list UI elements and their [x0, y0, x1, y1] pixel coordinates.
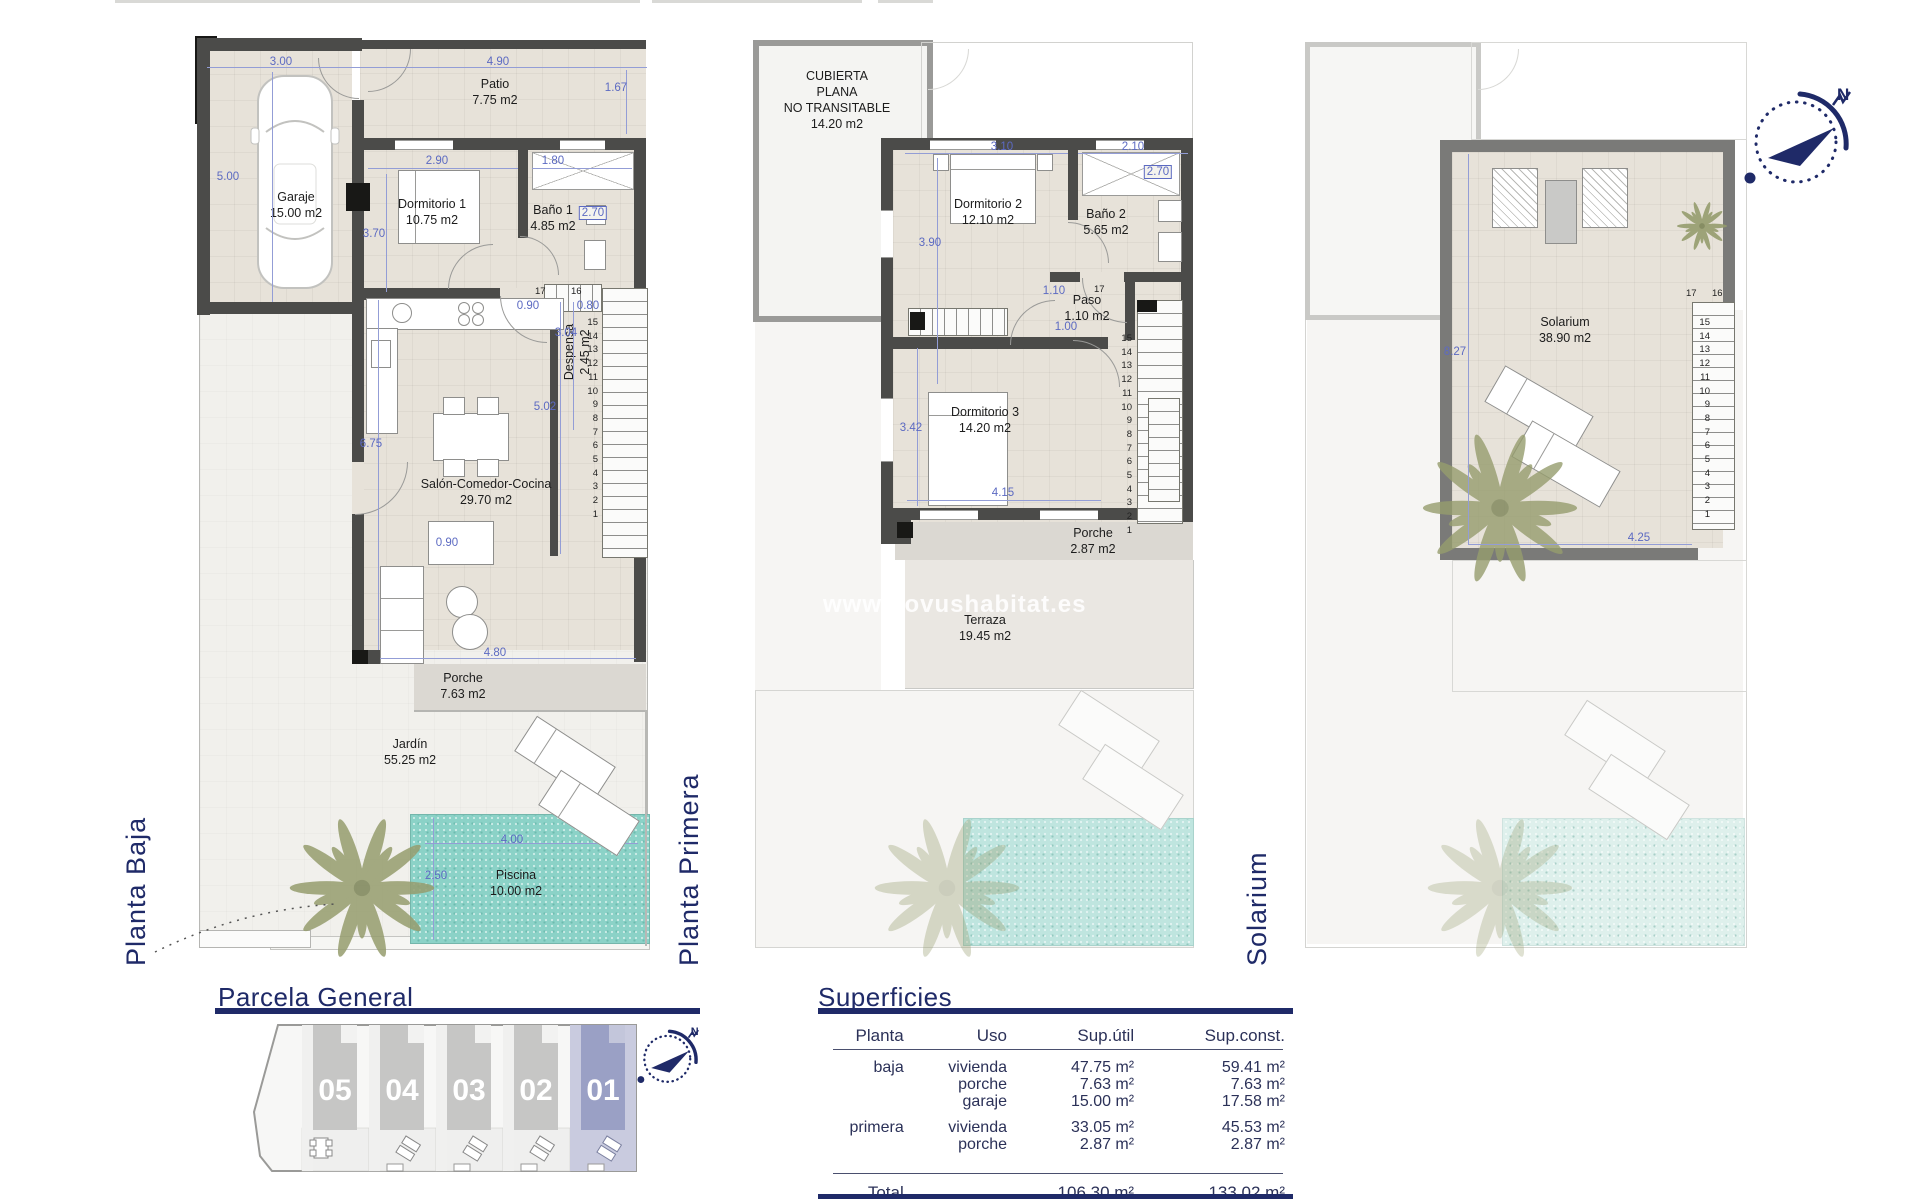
- kitchen-sink: [392, 303, 412, 323]
- cell-const: 59.41 m²: [1142, 1059, 1293, 1076]
- wall: [518, 138, 528, 238]
- hob-burner: [458, 314, 470, 326]
- palm-tree: [1420, 428, 1580, 588]
- window: [1040, 510, 1098, 520]
- room-label-salon: Salón-Comedor-Cocina29.70 m2: [421, 476, 552, 508]
- dim-line: [378, 300, 379, 650]
- sink: [1158, 200, 1182, 222]
- unit-number: 03: [452, 1074, 485, 1107]
- dim: 8.27: [1444, 346, 1466, 358]
- dim-line: [1468, 154, 1469, 544]
- wall: [1068, 138, 1078, 220]
- floorplan-sheet: { "watermark": "www.novushabitat.es", "c…: [0, 0, 1920, 1200]
- dim: 3.00: [270, 56, 292, 68]
- wardrobe: [1148, 398, 1180, 502]
- hob-burner: [458, 302, 470, 314]
- room-label-patio: Patio7.75 m2: [472, 76, 517, 108]
- chair: [477, 397, 499, 415]
- plan-title-solarium: Solarium: [1242, 851, 1273, 966]
- dim: 3.04: [555, 327, 577, 339]
- porche1-floor: [895, 522, 1193, 560]
- table-row: porche 2.87 m² 2.87 m²: [818, 1136, 1293, 1153]
- plan-title-baja: Planta Baja: [121, 817, 152, 966]
- dim: 5.00: [217, 171, 239, 183]
- window: [881, 210, 893, 258]
- side-table: [452, 614, 488, 650]
- dim: 4.00: [501, 834, 523, 846]
- ghost-ground: [755, 310, 881, 690]
- cell-planta: [818, 1093, 912, 1110]
- car-icon: [248, 68, 342, 296]
- cell-util: 15.00 m²: [1015, 1093, 1142, 1110]
- watermark-text: www.novushabitat.es: [823, 591, 1087, 619]
- dim: 2.70: [579, 206, 607, 220]
- cell-planta: [818, 1076, 912, 1093]
- cell-const: 17.58 m²: [1142, 1093, 1293, 1110]
- dim-line: [626, 70, 627, 134]
- parcela-title-rule: [215, 1008, 700, 1014]
- table-row: porche 7.63 m² 7.63 m²: [818, 1076, 1293, 1093]
- lounge-chair: [1582, 168, 1628, 228]
- room-label-cubierta: CUBIERTAPLANA NO TRANSITABLE14.20 m2: [784, 68, 891, 132]
- dim-line: [573, 302, 574, 430]
- superficies-table: Planta Uso Sup.útil Sup.const. baja vivi…: [818, 1026, 1293, 1201]
- dim: 2.10: [1122, 141, 1144, 153]
- unit-number: 01: [586, 1074, 619, 1107]
- room-label-dormitorio1: Dormitorio 110.75 m2: [398, 196, 466, 228]
- window: [920, 510, 978, 520]
- dim: 4.15: [992, 487, 1014, 499]
- wall: [362, 40, 646, 49]
- terraza-floor: [905, 560, 1194, 689]
- stair-number: 16: [571, 286, 582, 297]
- dim: 0.80: [577, 300, 599, 312]
- room-label-dormitorio2: Dormitorio 212.10 m2: [954, 196, 1022, 228]
- cell-uso: garaje: [912, 1093, 1015, 1110]
- crop-mark: [878, 0, 933, 3]
- table-row: garaje 15.00 m² 17.58 m²: [818, 1093, 1293, 1110]
- palm-tree: [1676, 200, 1728, 252]
- wall: [346, 183, 370, 211]
- window: [930, 140, 996, 150]
- wardrobe-dark: [910, 312, 925, 330]
- cell-const: 45.53 m²: [1142, 1119, 1293, 1136]
- dim-line: [272, 72, 273, 302]
- wall: [881, 138, 893, 528]
- superficies-title-rule: [818, 1008, 1293, 1014]
- dim: 2.50: [425, 870, 447, 882]
- unit-number: 04: [385, 1074, 419, 1107]
- ghost-palm-tree: [1425, 813, 1575, 963]
- dim-line: [532, 168, 632, 169]
- col-header-sup-const: Sup.const.: [1142, 1026, 1293, 1046]
- stair-numbers: 151413121110987654321: [1696, 316, 1710, 522]
- room-label-garaje: Garaje15.00 m2: [270, 189, 322, 221]
- cell-planta: baja: [818, 1059, 912, 1076]
- dim: 1.67: [605, 82, 627, 94]
- wall: [197, 38, 362, 51]
- toilet: [584, 240, 606, 270]
- dim-line: [907, 500, 1101, 501]
- table-row: primera vivienda 33.05 m² 45.53 m²: [818, 1119, 1293, 1136]
- cell-util: 7.63 m²: [1015, 1076, 1142, 1093]
- chair: [443, 397, 465, 415]
- dim: 2.70: [1144, 165, 1172, 179]
- dim: 5.02: [534, 401, 556, 413]
- dim: 3.70: [363, 228, 385, 240]
- col-header-planta: Planta: [818, 1026, 912, 1046]
- room-label-jardin: Jardín55.25 m2: [384, 736, 436, 768]
- wall: [197, 38, 210, 315]
- table-row: baja vivienda 47.75 m² 59.41 m²: [818, 1059, 1293, 1076]
- cell-planta: [818, 1136, 912, 1153]
- dim-line: [937, 158, 938, 384]
- window: [881, 398, 893, 462]
- dim: 6.75: [360, 438, 382, 450]
- lounge-chair: [1492, 168, 1538, 228]
- table: [1545, 180, 1577, 244]
- dim-line: [1078, 153, 1188, 154]
- stair-numbers: 151413121110987654321: [1118, 332, 1132, 538]
- porche-edge: [414, 710, 646, 712]
- room-label-porche1: Porche2.87 m2: [1070, 525, 1115, 557]
- dim: 2.90: [426, 155, 448, 167]
- dim: 4.90: [487, 56, 509, 68]
- wall: [897, 522, 913, 538]
- cell-const: 7.63 m²: [1142, 1076, 1293, 1093]
- col-header-sup-util: Sup.útil: [1015, 1026, 1142, 1046]
- dim: 3.10: [991, 141, 1013, 153]
- dining-table: [433, 413, 509, 461]
- dim: 1.00: [1055, 321, 1077, 333]
- crop-mark: [115, 0, 640, 3]
- col-header-uso: Uso: [912, 1026, 1015, 1046]
- cell-const: 2.87 m²: [1142, 1136, 1293, 1153]
- window: [395, 140, 453, 150]
- dim: 3.90: [919, 237, 941, 249]
- hob-burner: [472, 314, 484, 326]
- dim: 4.25: [1628, 532, 1650, 544]
- site-plan: 05 04 03 02 01: [248, 1020, 648, 1184]
- unit-number: 05: [318, 1074, 351, 1107]
- wall: [197, 302, 362, 314]
- cell-uso: porche: [912, 1136, 1015, 1153]
- table-rule: [833, 1049, 1283, 1050]
- chair: [443, 459, 465, 477]
- unit-number: 02: [519, 1074, 552, 1107]
- dim: 0.90: [436, 537, 458, 549]
- cell-uso: porche: [912, 1076, 1015, 1093]
- dim: 4.80: [484, 647, 506, 659]
- table-header-row: Planta Uso Sup.útil Sup.const.: [818, 1026, 1293, 1046]
- cell-util: 33.05 m²: [1015, 1119, 1142, 1136]
- stair-number: 16: [1712, 288, 1723, 299]
- room-label-solarium: Solarium38.90 m2: [1539, 314, 1591, 346]
- dim-line: [1468, 544, 1692, 545]
- dim-line: [905, 153, 1068, 154]
- cell-util: 47.75 m²: [1015, 1059, 1142, 1076]
- wall: [1137, 300, 1157, 312]
- table-bottom-rule: [818, 1194, 1293, 1199]
- cell-util: 2.87 m²: [1015, 1136, 1142, 1153]
- ghost-palm-tree: [872, 813, 1022, 963]
- nightstand: [1037, 154, 1053, 171]
- nightstand: [933, 154, 949, 171]
- crop-mark: [652, 0, 862, 3]
- room-label-dormitorio3: Dormitorio 314.20 m2: [951, 404, 1019, 436]
- dim: 1.80: [542, 155, 564, 167]
- stair-number: 17: [1686, 288, 1697, 299]
- window: [560, 140, 605, 150]
- dim-line: [368, 168, 518, 169]
- fence: [645, 710, 647, 946]
- compass-icon-small: N: [634, 1021, 704, 1091]
- dim: 3.42: [900, 422, 922, 434]
- cell-planta: primera: [818, 1119, 912, 1136]
- dim-line: [386, 174, 387, 292]
- cell-uso: vivienda: [912, 1119, 1015, 1136]
- plan-title-primera: Planta Primera: [674, 773, 705, 966]
- sofa: [380, 566, 424, 664]
- chair: [477, 459, 499, 477]
- room-label-porche: Porche7.63 m2: [440, 670, 485, 702]
- stair-treads: [602, 288, 648, 558]
- room-label-piscina: Piscina10.00 m2: [490, 867, 542, 899]
- toilet: [1158, 232, 1182, 262]
- cell-uso: vivienda: [912, 1059, 1015, 1076]
- side-table: [446, 586, 478, 618]
- room-label-paso: Paso1.10 m2: [1064, 292, 1109, 324]
- hob-burner: [472, 302, 484, 314]
- fridge: [371, 340, 391, 368]
- wall: [1440, 140, 1735, 152]
- room-label-bano1: Baño 14.85 m2: [530, 202, 575, 234]
- dim: 1.10: [1043, 285, 1065, 297]
- dim: 0.90: [517, 300, 539, 312]
- compass-icon: N: [1738, 76, 1860, 198]
- wall: [352, 650, 368, 664]
- dim-line: [560, 302, 561, 554]
- dotted-path: [150, 890, 350, 960]
- dim-line: [380, 658, 636, 659]
- room-label-bano2: Baño 25.65 m2: [1083, 206, 1128, 238]
- table-rule: [833, 1173, 1283, 1174]
